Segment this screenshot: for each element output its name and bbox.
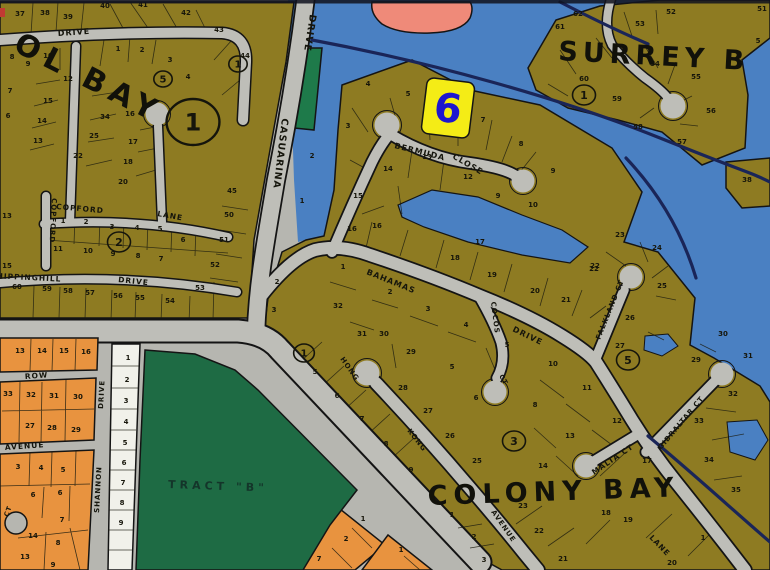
lot-number: 21 bbox=[558, 555, 568, 563]
lot-number: 22 bbox=[73, 152, 83, 160]
lot-number: 18 bbox=[450, 254, 460, 262]
lot-number: 13 bbox=[33, 137, 43, 145]
lot-number: 57 bbox=[677, 138, 687, 146]
lot-number: 23 bbox=[615, 231, 625, 239]
lot-number: 5 bbox=[450, 363, 455, 371]
lot-number: 2 bbox=[388, 288, 393, 296]
lot-number: 32 bbox=[26, 391, 36, 399]
lot-number: 5 bbox=[158, 225, 163, 233]
lot-number: 19 bbox=[487, 271, 497, 279]
lot-number: 3 bbox=[272, 306, 277, 314]
lot-number: 45 bbox=[227, 187, 237, 195]
lot-number: 4 bbox=[124, 418, 129, 426]
lot-number: 10 bbox=[548, 360, 558, 368]
lot-number: 12 bbox=[612, 417, 622, 425]
lot-number: 61 bbox=[555, 23, 565, 31]
lot-number: 42 bbox=[181, 9, 191, 17]
lot-number: 7 bbox=[481, 116, 486, 124]
lot-number: 4 bbox=[39, 464, 44, 472]
lot-number: 7 bbox=[317, 555, 322, 563]
lot-number: 26 bbox=[625, 314, 635, 322]
lot-number: 34 bbox=[100, 113, 110, 121]
lot-number: 53 bbox=[195, 284, 205, 292]
lot-number: 17 bbox=[128, 138, 138, 146]
marker-label: 6 bbox=[431, 84, 464, 133]
lot-number: 25 bbox=[89, 132, 99, 140]
lot-number: 1 bbox=[126, 354, 131, 362]
lot-number: 7 bbox=[360, 415, 365, 423]
lot-number: 16 bbox=[347, 225, 357, 233]
lot-number: 6 bbox=[181, 236, 186, 244]
lot-number: 15 bbox=[353, 192, 363, 200]
lot-number: 37 bbox=[15, 10, 25, 18]
lot-number: 18 bbox=[123, 158, 133, 166]
lot-number: 56 bbox=[706, 107, 716, 115]
svg-text:1: 1 bbox=[301, 349, 308, 360]
lot-number: 7 bbox=[159, 255, 164, 263]
lot-number: 9 bbox=[51, 561, 56, 569]
lot-number: 3 bbox=[124, 397, 129, 405]
svg-text:5: 5 bbox=[160, 75, 167, 86]
svg-text:5: 5 bbox=[624, 354, 632, 367]
lot-number: 15 bbox=[59, 347, 69, 355]
lot-number: 20 bbox=[667, 559, 677, 567]
lot-number: 39 bbox=[63, 13, 73, 21]
lot-number: 51 bbox=[757, 5, 767, 13]
lot-number: 11 bbox=[53, 245, 63, 253]
lot-number: 3 bbox=[16, 463, 21, 471]
lot-number: 6 bbox=[335, 392, 340, 400]
lot-number: 60 bbox=[12, 283, 22, 291]
lot-number: 12 bbox=[463, 173, 473, 181]
top-edge-strip bbox=[0, 0, 770, 4]
lot-number: 14 bbox=[28, 532, 38, 540]
lot-number: 29 bbox=[406, 348, 416, 356]
lot-number: 15 bbox=[2, 262, 12, 270]
lot-number: 59 bbox=[612, 95, 622, 103]
lot-number: 31 bbox=[49, 392, 59, 400]
lot-number: 3 bbox=[482, 556, 487, 564]
street-label: ROW bbox=[25, 370, 49, 381]
lot-number: 19 bbox=[623, 516, 633, 524]
lot-number: 4 bbox=[186, 73, 191, 81]
lot-number: 38 bbox=[40, 9, 50, 17]
lot-number: 2 bbox=[275, 278, 280, 286]
lot-number: 8 bbox=[519, 140, 524, 148]
lot-number: 25 bbox=[472, 457, 482, 465]
lot-number: 57 bbox=[85, 289, 95, 297]
lot-number: 2 bbox=[140, 46, 145, 54]
lot-number: 33 bbox=[694, 417, 704, 425]
lot-number: 35 bbox=[731, 486, 741, 494]
lot-number: 6 bbox=[474, 394, 479, 402]
lot-number: 53 bbox=[635, 20, 645, 28]
lot-number: 1 bbox=[450, 511, 455, 519]
plat-map-screenshot: 3738394041424344455051525312341098121514… bbox=[0, 0, 770, 570]
lot-number: 20 bbox=[530, 287, 540, 295]
lot-number: 20 bbox=[118, 178, 128, 186]
lot-number: 1 bbox=[61, 217, 66, 225]
lot-number: 4 bbox=[135, 224, 140, 232]
lot-number: 8 bbox=[136, 252, 141, 260]
lot-number: 30 bbox=[718, 330, 728, 338]
lot-number: 3 bbox=[426, 305, 431, 313]
lot-number: 7 bbox=[60, 516, 65, 524]
lot-number: 30 bbox=[73, 393, 83, 401]
lot-number: 4 bbox=[366, 80, 371, 88]
svg-text:1: 1 bbox=[185, 109, 202, 137]
highlight-marker-6[interactable]: 6 bbox=[421, 77, 475, 138]
lot-number: 55 bbox=[135, 294, 145, 302]
lot-number: 13 bbox=[15, 347, 25, 355]
lot-number: 5 bbox=[313, 368, 318, 376]
lot-number: 28 bbox=[47, 424, 57, 432]
lot-number: 62 bbox=[573, 10, 583, 18]
lot-number: 16 bbox=[372, 222, 382, 230]
lot-number: 38 bbox=[742, 176, 752, 184]
lot-number: 7 bbox=[121, 479, 126, 487]
lot-number: 14 bbox=[383, 165, 393, 173]
lot-number: 52 bbox=[666, 8, 676, 16]
red-edge-mark bbox=[0, 8, 5, 17]
lot-number: 25 bbox=[657, 282, 667, 290]
lot-number: 22 bbox=[534, 527, 544, 535]
lot-number: 10 bbox=[528, 201, 538, 209]
lot-number: 33 bbox=[3, 390, 13, 398]
lot-number: 8 bbox=[384, 440, 389, 448]
lot-number: 13 bbox=[2, 212, 12, 220]
lot-number: 24 bbox=[652, 244, 662, 252]
lot-number: 3 bbox=[110, 223, 115, 231]
lot-number: 17 bbox=[475, 238, 485, 246]
lot-number: 18 bbox=[601, 509, 611, 517]
lot-number: 58 bbox=[63, 287, 73, 295]
lot-number: 29 bbox=[691, 356, 701, 364]
lot-number: 51 bbox=[219, 236, 229, 244]
lot-number: 17 bbox=[642, 457, 652, 465]
lot-number: 1 bbox=[300, 197, 305, 205]
lot-number: 6 bbox=[6, 112, 11, 120]
lot-number: 59 bbox=[42, 285, 52, 293]
lot-number: 15 bbox=[43, 97, 53, 105]
lot-number: 5 bbox=[123, 439, 128, 447]
lot-number: 10 bbox=[83, 247, 93, 255]
lot-number: 29 bbox=[71, 426, 81, 434]
lot-number: 1 bbox=[399, 546, 404, 554]
lot-number: 5 bbox=[61, 466, 66, 474]
lot-number: 52 bbox=[210, 261, 220, 269]
lot-number: 6 bbox=[58, 489, 63, 497]
lot-number: 30 bbox=[379, 330, 389, 338]
lot-number: 14 bbox=[538, 462, 548, 470]
lot-number: 2 bbox=[310, 152, 315, 160]
svg-text:1: 1 bbox=[580, 89, 588, 102]
lot-number: 3 bbox=[168, 56, 173, 64]
lot-number: 54 bbox=[165, 297, 175, 305]
lot-number: 21 bbox=[561, 296, 571, 304]
lot-number: 5 bbox=[505, 341, 510, 349]
lot-number: 4 bbox=[464, 321, 469, 329]
lot-number: 1 bbox=[116, 45, 121, 53]
lot-number: 6 bbox=[122, 459, 127, 467]
lot-number: 9 bbox=[551, 167, 556, 175]
lot-number: 2 bbox=[472, 533, 477, 541]
lot-number: 16 bbox=[81, 348, 91, 356]
lot-number: 56 bbox=[113, 292, 123, 300]
lot-number: 3 bbox=[346, 122, 351, 130]
lot-number: 1 bbox=[701, 534, 706, 542]
street-label: DRIVE bbox=[97, 380, 107, 409]
lot-number: 2 bbox=[344, 535, 349, 543]
lot-number: 2 bbox=[125, 376, 130, 384]
lot-number: 50 bbox=[224, 211, 234, 219]
lot-number: 2 bbox=[84, 218, 89, 226]
lot-number: 13 bbox=[20, 553, 30, 561]
lot-number: 28 bbox=[398, 384, 408, 392]
lot-number: 9 bbox=[496, 192, 501, 200]
lot-number: 22 bbox=[590, 262, 600, 270]
lot-number: 32 bbox=[728, 390, 738, 398]
lot-number: 8 bbox=[120, 499, 125, 507]
lot-number: 32 bbox=[333, 302, 343, 310]
lot-number: 27 bbox=[25, 422, 35, 430]
lot-number: 31 bbox=[357, 330, 367, 338]
lot-number: 27 bbox=[423, 407, 433, 415]
svg-text:2: 2 bbox=[115, 236, 123, 249]
lot-number: 60 bbox=[579, 75, 589, 83]
map-canvas: 3738394041424344455051525312341098121514… bbox=[0, 0, 770, 570]
lot-number: 43 bbox=[214, 26, 224, 34]
lot-number: 8 bbox=[56, 539, 61, 547]
lot-number: 5 bbox=[406, 90, 411, 98]
lot-number: 11 bbox=[582, 384, 592, 392]
lot-number: 58 bbox=[633, 123, 643, 131]
lot-number: 1 bbox=[361, 515, 366, 523]
svg-text:3: 3 bbox=[510, 435, 518, 448]
lot-number: 14 bbox=[37, 117, 47, 125]
lot-number: 34 bbox=[704, 456, 714, 464]
lot-number: 31 bbox=[743, 352, 753, 360]
lot-number: 6 bbox=[31, 491, 36, 499]
lot-number: 8 bbox=[533, 401, 538, 409]
lot-number: 9 bbox=[409, 466, 414, 474]
svg-text:1: 1 bbox=[235, 60, 242, 71]
lot-number: 9 bbox=[119, 519, 124, 527]
lot-number: 13 bbox=[565, 432, 575, 440]
lot-number: 14 bbox=[37, 347, 47, 355]
lot-number: 27 bbox=[615, 342, 625, 350]
lot-number: 26 bbox=[445, 432, 455, 440]
lot-number: 5 bbox=[756, 37, 761, 45]
lot-number: 1 bbox=[341, 263, 346, 271]
lot-number: 7 bbox=[8, 87, 13, 95]
